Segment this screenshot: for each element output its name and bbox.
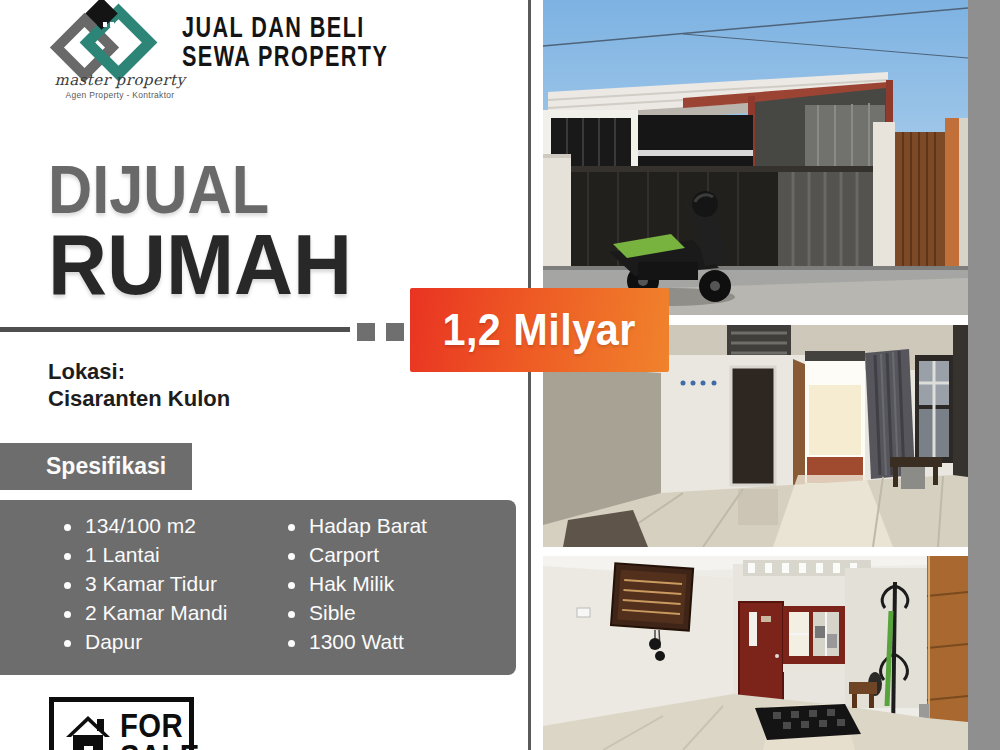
spec-item: Dapur	[64, 627, 227, 656]
photo-exterior-art	[543, 0, 968, 315]
logo-house-window	[103, 22, 107, 27]
location-value: Cisaranten Kulon	[48, 386, 230, 412]
specs-list-right: Hadap Barat Carport Hak Milik Sible 1300…	[288, 511, 427, 656]
specs-heading-badge: Spesifikasi	[0, 443, 192, 490]
location-label: Lokasi:	[48, 359, 125, 385]
brand-logo: master property Agen Property - Kontrakt…	[50, 2, 190, 104]
specs-panel: 134/100 m2 1 Lantai 3 Kamar Tidur 2 Kama…	[0, 500, 516, 675]
specs-list-left: 134/100 m2 1 Lantai 3 Kamar Tidur 2 Kama…	[64, 511, 227, 656]
spec-item: 2 Kamar Mandi	[64, 598, 227, 627]
property-type-title: RUMAH	[48, 221, 352, 307]
spec-item: 1300 Watt	[288, 627, 427, 656]
photo-entry-art	[543, 556, 968, 750]
spec-item: 3 Kamar Tidur	[64, 569, 227, 598]
logo-house-window	[110, 22, 114, 27]
house-icon	[64, 710, 112, 750]
vertical-divider-line	[528, 0, 531, 750]
spec-item: Hak Milik	[288, 569, 427, 598]
photo-house-front-exterior	[543, 0, 968, 315]
right-border-bar	[968, 0, 1000, 750]
brand-tagline: JUAL DAN BELI SEWA PROPERTY	[182, 12, 388, 70]
for-sale-sign: FOR SALE	[49, 697, 194, 750]
horizontal-rule	[0, 327, 350, 332]
brand-subtitle: Agen Property - Kontraktor	[50, 90, 190, 100]
listing-status-title: DIJUAL	[48, 155, 269, 223]
decor-square	[386, 323, 404, 341]
price-badge: 1,2 Milyar	[410, 288, 669, 372]
spec-item: Sible	[288, 598, 427, 627]
spec-item: 1 Lantai	[64, 540, 227, 569]
decor-square	[357, 323, 375, 341]
photo-entry-room-interior	[543, 556, 968, 750]
tagline-line2: SEWA PROPERTY	[182, 41, 388, 70]
spec-item: 134/100 m2	[64, 511, 227, 540]
price-value: 1,2 Milyar	[443, 304, 636, 356]
spec-item: Hadap Barat	[288, 511, 427, 540]
brand-name: master property	[50, 71, 190, 89]
spec-item: Carport	[288, 540, 427, 569]
sign-line2: SALE	[120, 741, 200, 750]
tagline-line1: JUAL DAN BELI	[182, 12, 388, 41]
specs-heading: Spesifikasi	[46, 453, 166, 480]
property-flyer: master property Agen Property - Kontrakt…	[0, 0, 1000, 750]
